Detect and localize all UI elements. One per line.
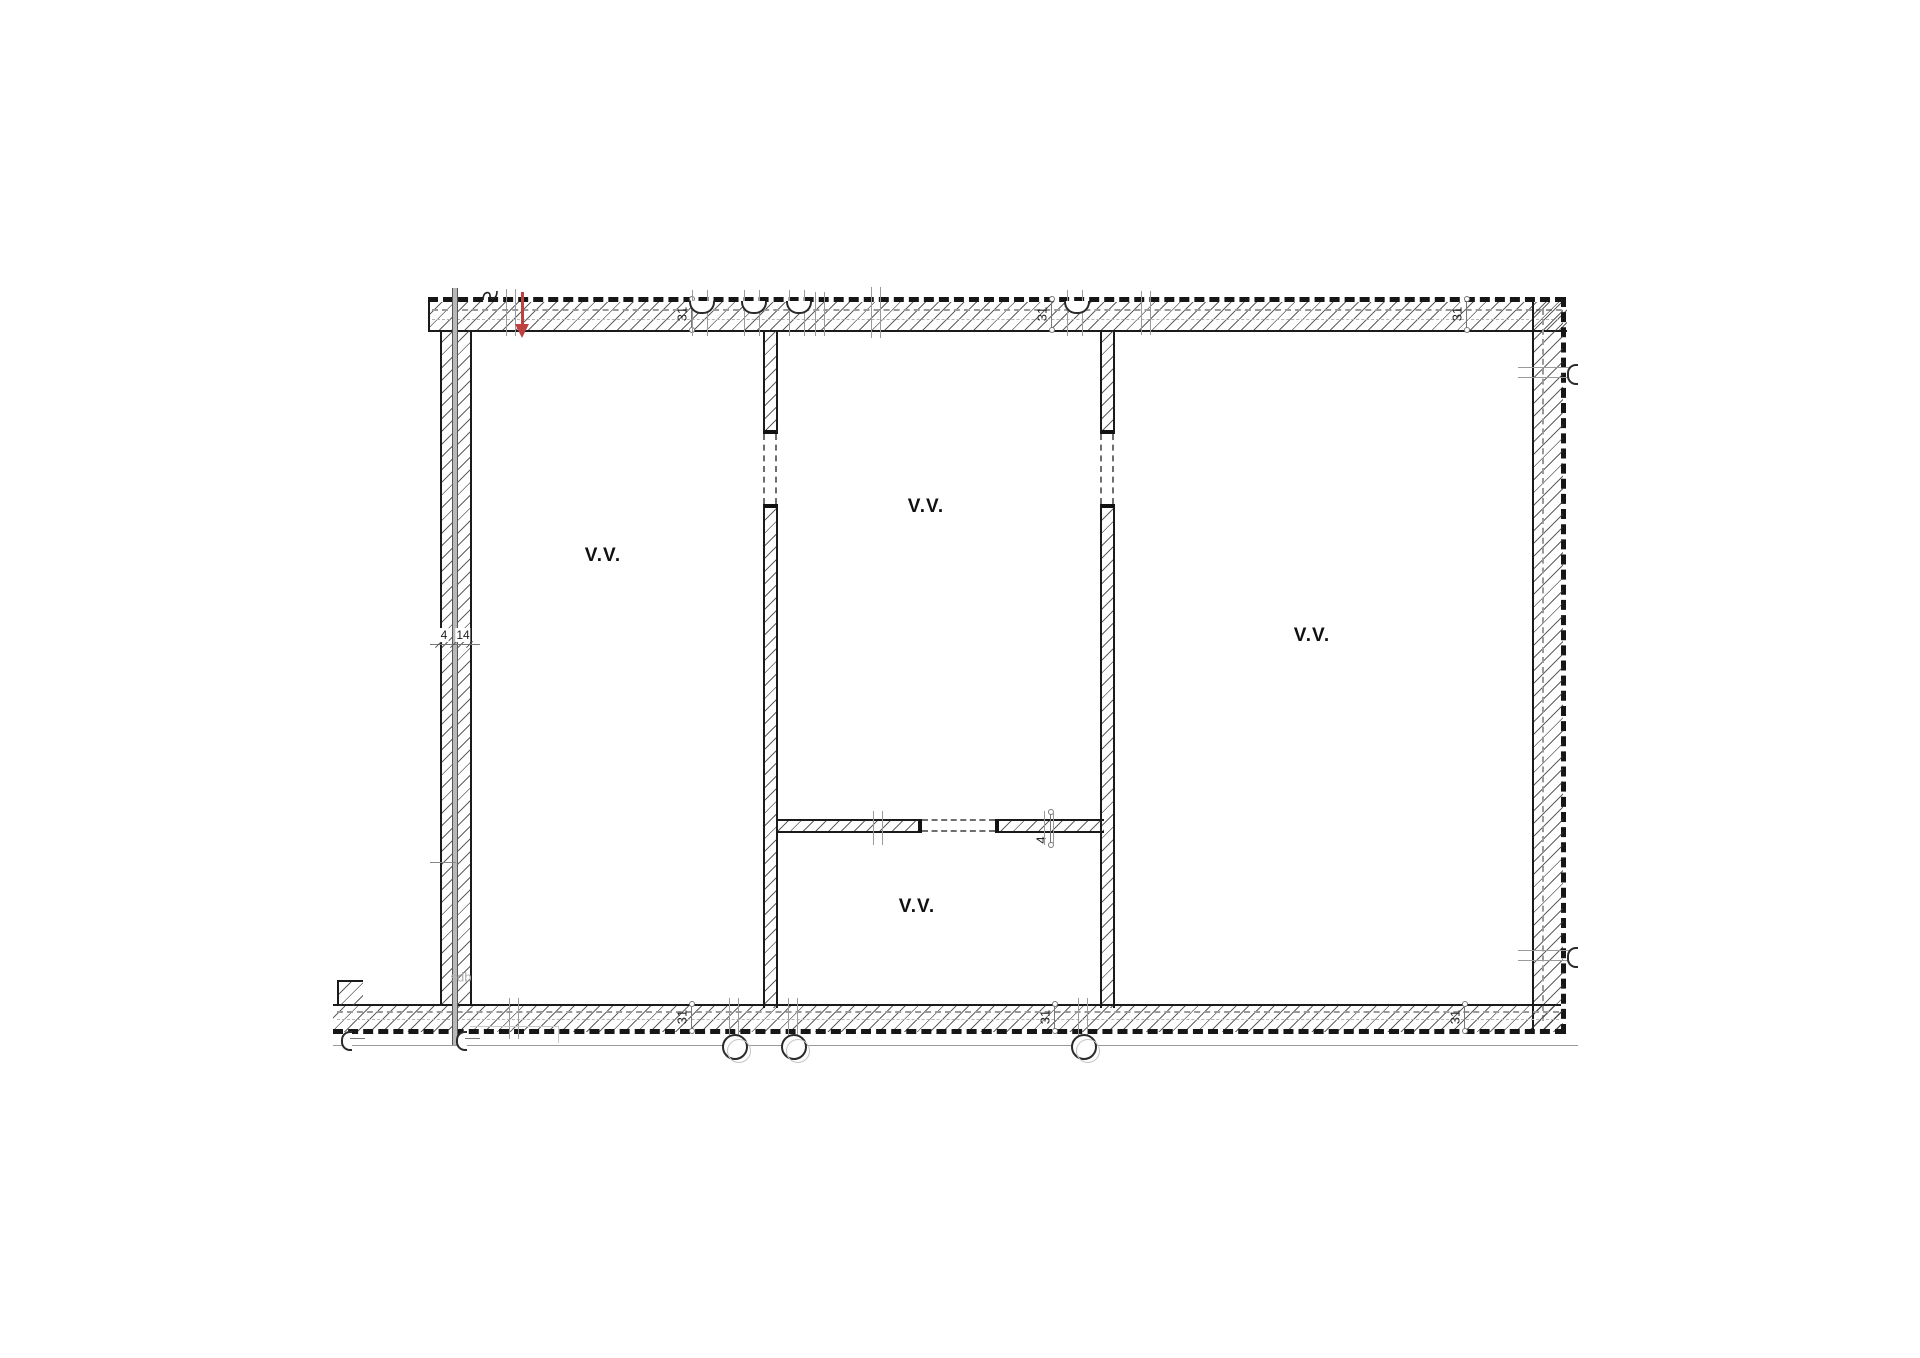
top-wall-inner-dashed-line: [432, 319, 1559, 320]
joint-marker-top-3: [871, 287, 881, 338]
room-label-adjacent-sdb: sdb: [451, 970, 472, 985]
joint-marker-bottom-3: [788, 998, 798, 1036]
partition-a-opening-dash-right: [775, 434, 777, 504]
dim-value-party-inner: 14: [455, 628, 470, 642]
partition-b-upper: [1100, 330, 1115, 434]
right-vent-arc-1: [1567, 364, 1578, 385]
room-label-middle: V.V.: [908, 496, 944, 518]
entrance-arrow-stem: [521, 292, 524, 325]
foundation-circle-3: [1071, 1034, 1097, 1060]
dim-value-party-outer: 4: [440, 628, 449, 642]
joint-marker-partition-c-2: [1044, 811, 1054, 845]
dim-line-bottom-2: [1054, 1004, 1055, 1031]
pipe-tail-1: [350, 1038, 365, 1039]
partition-c-left: [776, 819, 922, 833]
party-wall-inner-leaf: [458, 330, 472, 1004]
partition-b-opening-dash-left: [1100, 434, 1102, 504]
foundation-circle-1: [722, 1034, 748, 1060]
partition-a-lower: [763, 504, 778, 1008]
room-label-right: V.V.: [1294, 625, 1330, 647]
dim-value-bottom-2: 31: [1038, 1010, 1053, 1024]
bottom-wall-inner-dashed-line: [337, 1019, 1559, 1020]
party-wall-outer-leaf: [440, 330, 452, 1004]
foundation-line: [333, 1045, 1578, 1046]
partition-c-opening-dash-top: [922, 819, 995, 821]
dim-value-top-3: 31: [1450, 307, 1465, 321]
dim-line-top-2: [1051, 299, 1052, 330]
dim-value-bottom-3: 31: [1448, 1010, 1463, 1024]
joint-marker-top-4: [1141, 291, 1151, 335]
adjacent-wall-stub: [337, 980, 363, 1006]
joint-marker-bottom-4: [1078, 998, 1088, 1036]
entrance-arrow-head: [515, 324, 529, 338]
dim-value-top-1: 31: [675, 307, 690, 321]
top-wall-axis-dashed-line: [432, 309, 1562, 311]
partition-b-lower: [1100, 504, 1115, 1008]
right-vent-arc-2: [1567, 947, 1578, 968]
room-label-bottom: V.V.: [899, 896, 935, 918]
dim-value-bottom-1: 31: [675, 1010, 690, 1024]
pipe-connector-outline: [470, 1026, 559, 1043]
floor-plan-canvas: V.V. V.V. V.V. V.V. sdb 31 31 31 31 31 3…: [0, 0, 1920, 1358]
pipe-symbol-1: [341, 1031, 352, 1051]
partition-c-opening-dash-bottom: [922, 830, 995, 832]
dim-line-top-3: [1466, 299, 1467, 330]
reference-mark-icon: [481, 289, 499, 302]
right-wall-axis-dashed-line: [1542, 309, 1544, 1021]
joint-marker-top-2: [815, 292, 825, 336]
witness-tick-party-wall: [430, 862, 456, 863]
partition-a-opening-dash-left: [763, 434, 765, 504]
dim-line-bottom-3: [1464, 1004, 1465, 1031]
joint-marker-bottom-2: [729, 998, 739, 1036]
dim-line-bottom-1: [691, 1004, 692, 1031]
top-wall: [428, 302, 1567, 332]
pipe-symbol-2: [456, 1031, 467, 1051]
partition-b-opening-dash-right: [1112, 434, 1114, 504]
right-wall: [1532, 302, 1563, 1031]
room-label-left: V.V.: [585, 545, 621, 567]
joint-marker-partition-c-1: [873, 811, 883, 845]
dim-value-top-2: 31: [1035, 307, 1050, 321]
bottom-wall-axis-dashed-line: [337, 1011, 1559, 1013]
foundation-circle-2: [781, 1034, 807, 1060]
partition-a-upper: [763, 330, 778, 434]
